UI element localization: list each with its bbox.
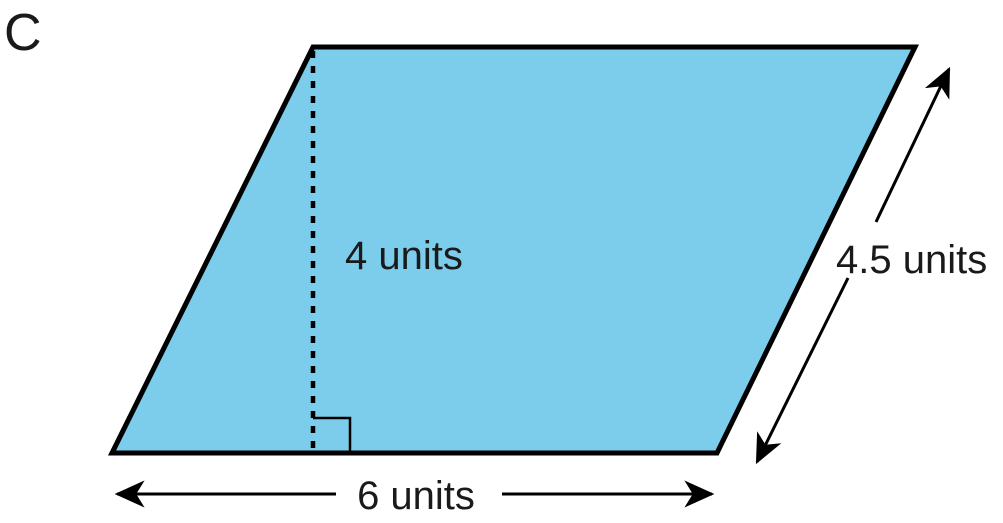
parallelogram-diagram: C 4 units 4.5 units 6 units bbox=[0, 0, 1003, 523]
figure-label: C bbox=[4, 4, 42, 62]
parallelogram-shape bbox=[112, 47, 915, 453]
slant-side-label: 4.5 units bbox=[836, 238, 987, 282]
height-label: 4 units bbox=[345, 234, 463, 278]
base-label: 6 units bbox=[357, 474, 475, 518]
diagram-canvas: C 4 units 4.5 units 6 units bbox=[0, 0, 1003, 523]
